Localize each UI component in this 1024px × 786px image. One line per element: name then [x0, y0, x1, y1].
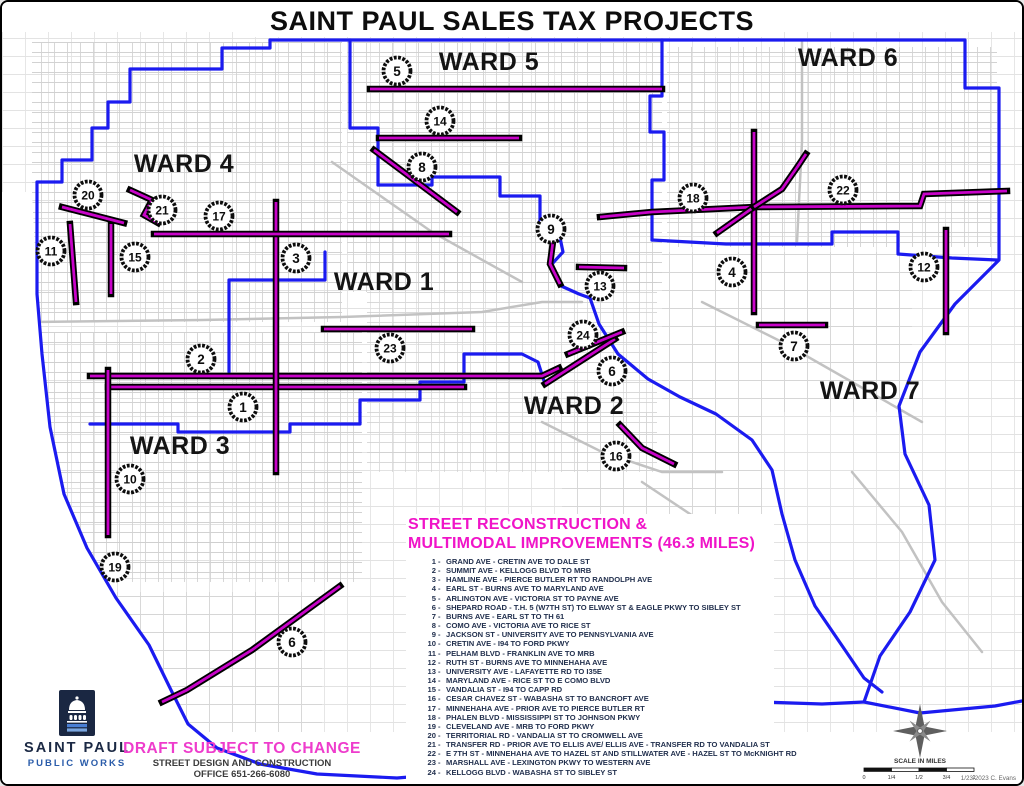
legend-item-number: 6 [408, 603, 436, 612]
scale-segment-0 [864, 768, 892, 771]
legend-item-number: 17 [408, 704, 436, 713]
scale-segment-2 [919, 768, 947, 771]
project-marker-number: 6 [608, 364, 616, 379]
legend-item-desc: UNIVERSITY AVE - LAFAYETTE RD TO I35E [446, 667, 774, 676]
legend-item-22: 22-E 7TH ST - MINNEHAHA AVE TO HAZEL ST … [408, 749, 774, 758]
legend-item-desc: EARL ST - BURNS AVE TO MARYLAND AVE [446, 584, 774, 593]
legend-item-17: 17-MINNEHAHA AVE - PRIOR AVE TO PIERCE B… [408, 704, 774, 713]
legend-item-desc: KELLOGG BLVD - WABASHA ST TO SIBLEY ST [446, 768, 774, 777]
legend-item-19: 19-CLEVELAND AVE - MRB TO FORD PKWY [408, 722, 774, 731]
legend-item-dash: - [438, 603, 444, 612]
legend-item-number: 22 [408, 749, 436, 758]
project-marker-number: 12 [917, 260, 931, 274]
scale-tick-1: 1/4 [888, 775, 896, 781]
project-marker-number: 8 [418, 160, 426, 175]
legend-item-2: 2-SUMMIT AVE - KELLOGG BLVD TO MRB [408, 566, 774, 575]
project-marker-number: 3 [292, 251, 300, 266]
draft-block: DRAFT SUBJECT TO CHANGE STREET DESIGN AN… [114, 740, 370, 780]
project-marker-5: 5 [384, 58, 411, 85]
legend-item-1: 1-GRAND AVE - CRETIN AVE TO DALE ST [408, 557, 774, 566]
legend-item-dash: - [438, 630, 444, 639]
scale-tick-0: 0 [862, 775, 865, 781]
legend-item-14: 14-MARYLAND AVE - RICE ST TO E COMO BLVD [408, 676, 774, 685]
legend-item-13: 13-UNIVERSITY AVE - LAFAYETTE RD TO I35E [408, 667, 774, 676]
legend-item-desc: CLEVELAND AVE - MRB TO FORD PKWY [446, 722, 774, 731]
legend-item-dash: - [438, 685, 444, 694]
project-marker-number: 22 [836, 183, 850, 197]
legend-item-dash: - [438, 566, 444, 575]
legend-item-10: 10-CRETIN AVE - I94 TO FORD PKWY [408, 639, 774, 648]
legend-item-15: 15-VANDALIA ST - I94 TO CAPP RD [408, 685, 774, 694]
project-marker-number: 10 [123, 472, 137, 486]
legend-item-8: 8-COMO AVE - VICTORIA AVE TO RICE ST [408, 621, 774, 630]
legend-item-desc: PHALEN BLVD - MISSISSIPPI ST TO JOHNSON … [446, 713, 774, 722]
legend-item-desc: CESAR CHAVEZ ST - WABASHA ST TO BANCROFT… [446, 694, 774, 703]
project-marker-8: 8 [409, 154, 436, 181]
project-marker-20: 20 [75, 182, 102, 209]
project-marker-number: 9 [547, 222, 555, 237]
scale-segment-1 [892, 768, 920, 771]
project-marker-number: 4 [728, 265, 736, 280]
legend-item-dash: - [438, 584, 444, 593]
legend-item-number: 10 [408, 639, 436, 648]
project-marker-16: 16 [603, 443, 630, 470]
project-marker-6: 6 [279, 629, 306, 656]
project-marker-number: 16 [609, 449, 623, 463]
project-marker-number: 19 [108, 560, 122, 574]
legend-item-number: 24 [408, 768, 436, 777]
project-marker-4: 4 [719, 259, 746, 286]
legend-item-number: 1 [408, 557, 436, 566]
project-marker-15: 15 [122, 244, 149, 271]
legend-item-number: 16 [408, 694, 436, 703]
legend-item-20: 20-TERRITORIAL RD - VANDALIA ST TO CROMW… [408, 731, 774, 740]
legend-item-5: 5-ARLINGTON AVE - VICTORIA ST TO PAYNE A… [408, 594, 774, 603]
legend-title-line1: STREET RECONSTRUCTION & [408, 515, 774, 534]
project-marker-6: 6 [599, 358, 626, 385]
project-marker-14: 14 [427, 108, 454, 135]
project-marker-9: 9 [538, 216, 565, 243]
legend-item-dash: - [438, 713, 444, 722]
project-marker-number: 23 [383, 341, 397, 355]
project-marker-number: 13 [593, 279, 607, 293]
project-marker-3: 3 [283, 245, 310, 272]
legend: STREET RECONSTRUCTION & MULTIMODAL IMPRO… [406, 514, 774, 779]
legend-item-dash: - [438, 639, 444, 648]
legend-item-desc: HAMLINE AVE - PIERCE BUTLER RT TO RANDOL… [446, 575, 774, 584]
legend-item-number: 4 [408, 584, 436, 593]
legend-item-number: 12 [408, 658, 436, 667]
project-marker-number: 2 [197, 352, 205, 367]
legend-item-desc: GRAND AVE - CRETIN AVE TO DALE ST [446, 557, 774, 566]
legend-item-3: 3-HAMLINE AVE - PIERCE BUTLER RT TO RAND… [408, 575, 774, 584]
project-route-13 [579, 267, 624, 268]
scale-tick-3: 3/4 [943, 775, 951, 781]
project-marker-23: 23 [377, 335, 404, 362]
legend-item-desc: BURNS AVE - EARL ST TO TH 61 [446, 612, 774, 621]
project-marker-21: 21 [149, 197, 176, 224]
legend-item-desc: E 7TH ST - MINNEHAHA AVE TO HAZEL ST AND… [446, 749, 797, 758]
legend-item-18: 18-PHALEN BLVD - MISSISSIPPI ST TO JOHNS… [408, 713, 774, 722]
scale-tick-2: 1/2 [915, 775, 923, 781]
legend-item-number: 9 [408, 630, 436, 639]
legend-item-dash: - [438, 758, 444, 767]
capitol-dome-icon [59, 690, 95, 736]
legend-item-desc: MARYLAND AVE - RICE ST TO E COMO BLVD [446, 676, 774, 685]
legend-item-21: 21-TRANSFER RD - PRIOR AVE TO ELLIS AVE/… [408, 740, 774, 749]
legend-item-number: 14 [408, 676, 436, 685]
legend-item-number: 3 [408, 575, 436, 584]
project-marker-number: 11 [45, 244, 58, 258]
ward-label-7: WARD 7 [820, 377, 920, 405]
legend-item-7: 7-BURNS AVE - EARL ST TO TH 61 [408, 612, 774, 621]
legend-item-dash: - [438, 621, 444, 630]
legend-item-desc: TERRITORIAL RD - VANDALIA ST TO CROMWELL… [446, 731, 774, 740]
legend-item-dash: - [438, 649, 444, 658]
project-marker-11: 11 [38, 238, 65, 265]
project-marker-number: 14 [433, 114, 447, 128]
legend-item-number: 2 [408, 566, 436, 575]
legend-item-number: 15 [408, 685, 436, 694]
project-marker-number: 15 [128, 250, 142, 264]
project-marker-number: 17 [212, 209, 226, 223]
legend-item-number: 18 [408, 713, 436, 722]
legend-item-desc: CRETIN AVE - I94 TO FORD PKWY [446, 639, 774, 648]
project-marker-19: 19 [102, 554, 129, 581]
legend-item-dash: - [438, 575, 444, 584]
project-marker-number: 24 [576, 328, 590, 342]
project-marker-12: 12 [911, 254, 938, 281]
legend-item-9: 9-JACKSON ST - UNIVERSITY AVE TO PENNSYL… [408, 630, 774, 639]
draft-notice: DRAFT SUBJECT TO CHANGE [114, 740, 370, 758]
legend-item-dash: - [438, 768, 444, 777]
legend-item-desc: TRANSFER RD - PRIOR AVE TO ELLIS AVE/ EL… [446, 740, 774, 749]
legend-item-number: 5 [408, 594, 436, 603]
legend-item-dash: - [438, 694, 444, 703]
legend-item-dash: - [438, 667, 444, 676]
project-marker-number: 6 [288, 635, 296, 650]
legend-item-dash: - [438, 676, 444, 685]
project-marker-number: 5 [393, 64, 401, 79]
legend-item-dash: - [438, 557, 444, 566]
project-marker-2: 2 [188, 346, 215, 373]
project-marker-number: 20 [81, 188, 95, 202]
legend-item-desc: MINNEHAHA AVE - PRIOR AVE TO PIERCE BUTL… [446, 704, 774, 713]
legend-item-desc: ARLINGTON AVE - VICTORIA ST TO PAYNE AVE [446, 594, 774, 603]
legend-item-number: 23 [408, 758, 436, 767]
legend-item-23: 23-MARSHALL AVE - LEXINGTON PKWY TO WEST… [408, 758, 774, 767]
legend-item-number: 11 [408, 649, 436, 658]
legend-item-dash: - [438, 612, 444, 621]
legend-item-16: 16-CESAR CHAVEZ ST - WABASHA ST TO BANCR… [408, 694, 774, 703]
ward-label-5: WARD 2 [524, 392, 624, 420]
project-marker-number: 1 [239, 400, 247, 415]
ward-label-2: WARD 5 [439, 48, 539, 76]
ward-label-3: WARD 6 [798, 44, 898, 72]
legend-item-desc: SHEPARD ROAD - T.H. 5 (W7TH ST) TO ELWAY… [446, 603, 774, 612]
legend-item-dash: - [438, 740, 444, 749]
legend-item-11: 11-PELHAM BLVD - FRANKLIN AVE TO MRB [408, 649, 774, 658]
office-line2: OFFICE 651-266-6080 [114, 769, 370, 780]
legend-item-desc: PELHAM BLVD - FRANKLIN AVE TO MRB [446, 649, 774, 658]
legend-item-dash: - [438, 704, 444, 713]
project-marker-13: 13 [587, 273, 614, 300]
project-marker-7: 7 [781, 333, 808, 360]
map-credit: 1/23/2023 C. Evans [961, 775, 1016, 782]
legend-item-desc: COMO AVE - VICTORIA AVE TO RICE ST [446, 621, 774, 630]
legend-item-24: 24-KELLOGG BLVD - WABASHA ST TO SIBLEY S… [408, 768, 774, 777]
scale-bar-segments [864, 768, 974, 771]
project-marker-18: 18 [680, 185, 707, 212]
legend-item-number: 13 [408, 667, 436, 676]
legend-item-desc: MARSHALL AVE - LEXINGTON PKWY TO WESTERN… [446, 758, 774, 767]
legend-item-number: 21 [408, 740, 436, 749]
project-marker-17: 17 [206, 203, 233, 230]
legend-item-dash: - [438, 731, 444, 740]
legend-item-dash: - [438, 594, 444, 603]
project-marker-number: 21 [155, 203, 169, 217]
legend-item-desc: SUMMIT AVE - KELLOGG BLVD TO MRB [446, 566, 774, 575]
legend-item-number: 20 [408, 731, 436, 740]
legend-item-4: 4-EARL ST - BURNS AVE TO MARYLAND AVE [408, 584, 774, 593]
legend-item-desc: VANDALIA ST - I94 TO CAPP RD [446, 685, 774, 694]
scale-label: SCALE IN MILES [894, 758, 947, 765]
legend-item-desc: RUTH ST - BURNS AVE TO MINNEHAHA AVE [446, 658, 774, 667]
project-marker-number: 7 [790, 339, 798, 354]
legend-title-line2: MULTIMODAL IMPROVEMENTS (46.3 MILES) [408, 534, 774, 553]
legend-item-number: 7 [408, 612, 436, 621]
legend-item-dash: - [438, 658, 444, 667]
legend-item-dash: - [438, 722, 444, 731]
legend-item-number: 8 [408, 621, 436, 630]
ward-label-1: WARD 4 [134, 150, 234, 178]
project-marker-22: 22 [830, 177, 857, 204]
legend-item-dash: - [438, 749, 444, 758]
project-marker-1: 1 [230, 394, 257, 421]
project-marker-24: 24 [570, 322, 597, 349]
office-line1: STREET DESIGN AND CONSTRUCTION [114, 758, 370, 769]
scale-segment-3 [947, 768, 975, 771]
ward-label-4: WARD 1 [334, 268, 434, 296]
legend-item-12: 12-RUTH ST - BURNS AVE TO MINNEHAHA AVE [408, 658, 774, 667]
project-marker-10: 10 [117, 466, 144, 493]
legend-item-desc: JACKSON ST - UNIVERSITY AVE TO PENNSYLVA… [446, 630, 774, 639]
legend-items: 1-GRAND AVE - CRETIN AVE TO DALE ST2-SUM… [408, 557, 774, 777]
ward-label-6: WARD 3 [130, 432, 230, 460]
project-marker-number: 18 [686, 191, 700, 205]
legend-item-number: 19 [408, 722, 436, 731]
map-sheet: 5148202117182211153913412242372611610196… [0, 0, 1024, 786]
legend-item-6: 6-SHEPARD ROAD - T.H. 5 (W7TH ST) TO ELW… [408, 603, 774, 612]
